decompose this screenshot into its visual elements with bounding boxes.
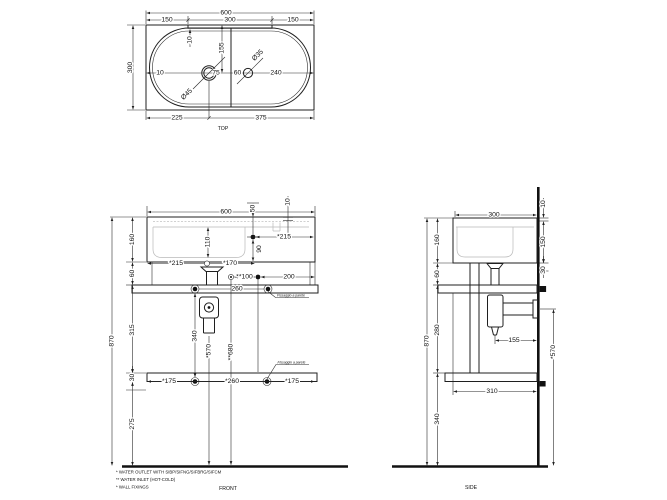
dim-front-outlet-to-inlet: *170 xyxy=(223,260,237,267)
front-wall-fix-lower-label: Fissaggio a parete xyxy=(278,360,306,364)
dim-front-shelf-thickness: 30 xyxy=(129,374,136,382)
dim-front-top-offset: 50 xyxy=(250,205,257,213)
dim-side-trap-offset: 155 xyxy=(508,337,520,344)
dim-side-shelf-to-floor: 340 xyxy=(434,413,441,425)
dim-front-shelf-left: *175 xyxy=(162,378,176,385)
dim-front-shelf-to-floor: 275 xyxy=(129,418,136,430)
side-view-caption: SIDE xyxy=(465,485,478,491)
dim-front-basin-height: 160 xyxy=(129,234,136,246)
top-view-caption: TOP xyxy=(218,126,229,132)
dim-front-bowl-depth: 110 xyxy=(205,236,212,247)
dim-front-rail-to-shelf: 315 xyxy=(129,324,136,336)
dim-front-shelf-right: *175 xyxy=(285,378,299,385)
dim-front-fix-vertical-span: 340 xyxy=(192,330,199,342)
dim-front-shelf-fix-span: *260 xyxy=(225,378,239,385)
dim-top-width-total: 600 xyxy=(220,10,232,17)
footnote-water-inlet: ** WATER INLET (HOT-COLD) xyxy=(116,477,176,482)
dim-side-shelf-depth: 310 xyxy=(486,388,498,395)
dim-top-depth-total: 300 xyxy=(127,62,134,74)
dim-top-tap-to-divider: 75 xyxy=(212,70,220,77)
dim-side-rail-to-shelf: 280 xyxy=(434,324,441,336)
dim-side-slot-offset: 10 xyxy=(540,200,547,208)
dim-side-depth-total: 300 xyxy=(488,212,500,219)
dim-side-bracket: 30 xyxy=(540,266,547,274)
footnote-wall-fixings: * WALL FIXINGS xyxy=(116,485,149,490)
dim-front-total-height: 870 xyxy=(109,335,116,347)
dim-side-basin-height: 160 xyxy=(434,234,441,246)
dim-front-inlet-drop: 90 xyxy=(256,245,263,253)
dim-top-inlet-to-edge: 240 xyxy=(270,70,282,77)
dim-front-inlet-height: **680 xyxy=(228,343,235,360)
dim-side-back-drop: 150 xyxy=(540,236,547,248)
front-view-caption: FRONT xyxy=(219,486,238,492)
dim-front-outlet-from-left: *215 xyxy=(169,260,183,267)
dim-front-inlet-pair: **100 xyxy=(236,274,253,281)
dim-top-tap-to-right: 375 xyxy=(255,115,267,122)
dim-side-total-height: 870 xyxy=(424,335,431,347)
dim-top-back-right: 150 xyxy=(287,17,299,24)
washbasin-technical-drawing: 600 150 300 150 10 155 300 10 75 6 xyxy=(0,0,667,500)
dim-front-width-total: 600 xyxy=(220,209,232,216)
dim-front-rail-fix-span: 260 xyxy=(231,286,243,293)
dim-front-basin-to-rail: 60 xyxy=(129,270,136,278)
dim-side-basin-to-rail: 60 xyxy=(434,270,441,278)
dim-front-inlet-to-right: *215 xyxy=(277,234,291,241)
dim-top-divider-to-inlet: 60 xyxy=(234,70,242,77)
dim-top-slot-offset: 10 xyxy=(187,36,194,44)
front-wall-fix-upper-label: Fissaggio a parete xyxy=(277,293,305,297)
dim-front-slot-width: 10 xyxy=(285,198,292,206)
dim-top-edge-gap: 10 xyxy=(156,70,164,77)
dim-front-inlet-to-edge: 200 xyxy=(283,274,295,281)
dim-top-back-left: 150 xyxy=(161,17,173,24)
dim-front-outlet-height: *570 xyxy=(206,344,213,358)
dim-side-outlet-height: *570 xyxy=(550,345,557,359)
dim-top-left-to-tap: 225 xyxy=(171,115,183,122)
footnote-water-outlet: * WATER OUTLET WITH SIBP/SIFNG/SIFBRG/SI… xyxy=(116,470,222,475)
dim-top-center-offset: 155 xyxy=(219,42,226,54)
dim-top-back-center: 300 xyxy=(224,17,236,24)
page-background xyxy=(0,0,667,500)
technical-drawing-page: 600 150 300 150 10 155 300 10 75 6 xyxy=(0,0,667,500)
